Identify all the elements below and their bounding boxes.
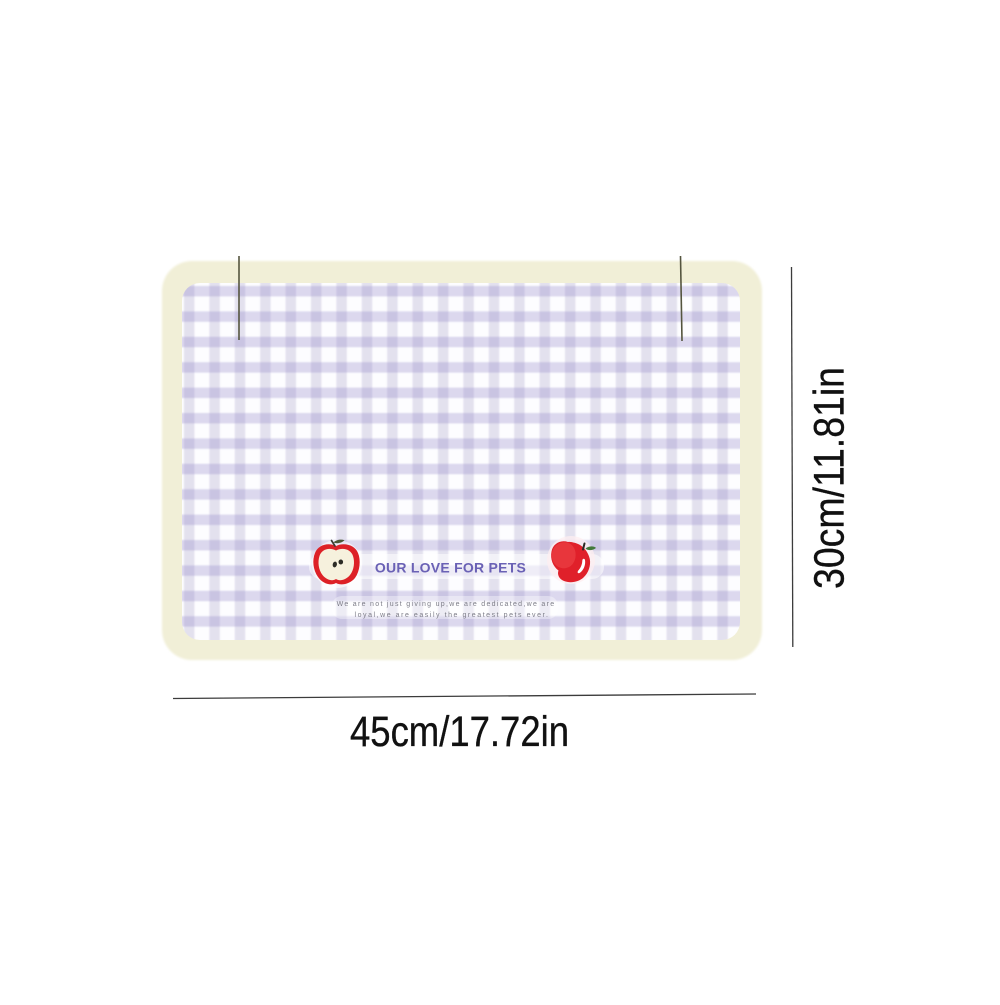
svg-text:30cm/11.81in: 30cm/11.81in <box>806 367 854 589</box>
svg-text:We are not just giving up,we a: We are not just giving up,we are dedicat… <box>337 601 556 608</box>
svg-text:45cm/17.72in: 45cm/17.72in <box>350 708 569 756</box>
svg-text:OUR LOVE FOR PETS: OUR LOVE FOR PETS <box>375 560 526 576</box>
svg-text:loyal,we are easily the greate: loyal,we are easily the greatest pets ev… <box>354 612 549 619</box>
